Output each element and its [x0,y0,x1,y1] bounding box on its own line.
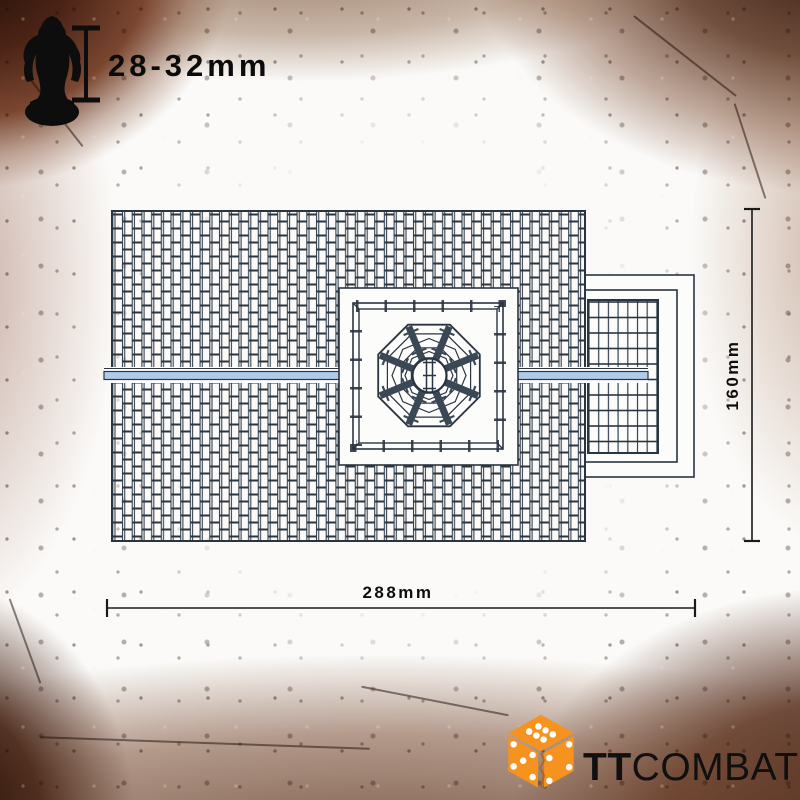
width-dimension: 288mm [107,583,695,617]
brand-wordmark: TTCOMBAT [583,746,799,790]
width-dimension-label: 288mm [362,583,433,602]
brand-wordmark-tt: TT [583,746,632,789]
roof-plan-drawing: 288mm 160mm [0,0,800,800]
height-dimension: 160mm [723,209,760,541]
central-skylight-tower [339,288,518,465]
height-dimension-label: 160mm [723,339,742,410]
brand-wordmark-combat: COMBAT [632,746,799,789]
product-image: 28-32mm [0,0,800,800]
cracked-orange-die-icon [503,712,579,798]
brand-logo: TTCOMBAT [503,712,799,798]
dome-centre-vent [413,359,447,393]
